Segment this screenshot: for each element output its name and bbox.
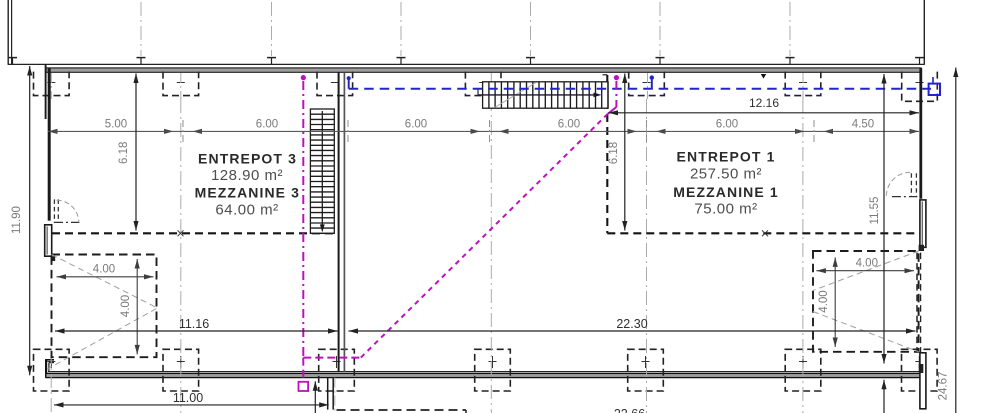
svg-text:24.67: 24.67 xyxy=(938,372,950,401)
svg-text:6.00: 6.00 xyxy=(558,119,580,131)
svg-text:5.00: 5.00 xyxy=(105,119,127,131)
svg-text:MEZZANINE 3: MEZZANINE 3 xyxy=(195,184,300,200)
svg-text:11.16: 11.16 xyxy=(179,317,209,331)
svg-text:6.00: 6.00 xyxy=(405,119,427,131)
svg-text:75.00 m²: 75.00 m² xyxy=(694,201,757,218)
svg-text:ENTREPOT 3: ENTREPOT 3 xyxy=(198,150,297,166)
svg-text:4.00: 4.00 xyxy=(856,258,878,270)
svg-text:6.00: 6.00 xyxy=(256,119,278,131)
svg-text:4.50: 4.50 xyxy=(852,119,874,131)
svg-text:6.18: 6.18 xyxy=(608,142,620,164)
svg-text:22.30: 22.30 xyxy=(616,317,647,331)
svg-text:ENTREPOT 1: ENTREPOT 1 xyxy=(677,148,776,164)
svg-text:6.00: 6.00 xyxy=(716,119,738,131)
svg-text:6.18: 6.18 xyxy=(118,142,130,164)
svg-text:128.90 m²: 128.90 m² xyxy=(211,167,283,184)
svg-text:4.00: 4.00 xyxy=(818,290,830,312)
svg-text:4.00: 4.00 xyxy=(120,295,132,317)
svg-text:11.90: 11.90 xyxy=(11,206,23,234)
svg-text:11.55: 11.55 xyxy=(869,197,881,225)
svg-text:257.50 m²: 257.50 m² xyxy=(690,166,762,183)
svg-text:12.16: 12.16 xyxy=(749,96,779,110)
svg-text:4.00: 4.00 xyxy=(93,264,115,276)
svg-text:11.00: 11.00 xyxy=(173,391,203,405)
svg-text:64.00 m²: 64.00 m² xyxy=(215,202,278,219)
svg-text:22.66: 22.66 xyxy=(614,407,645,413)
svg-text:MEZZANINE 1: MEZZANINE 1 xyxy=(673,184,778,200)
